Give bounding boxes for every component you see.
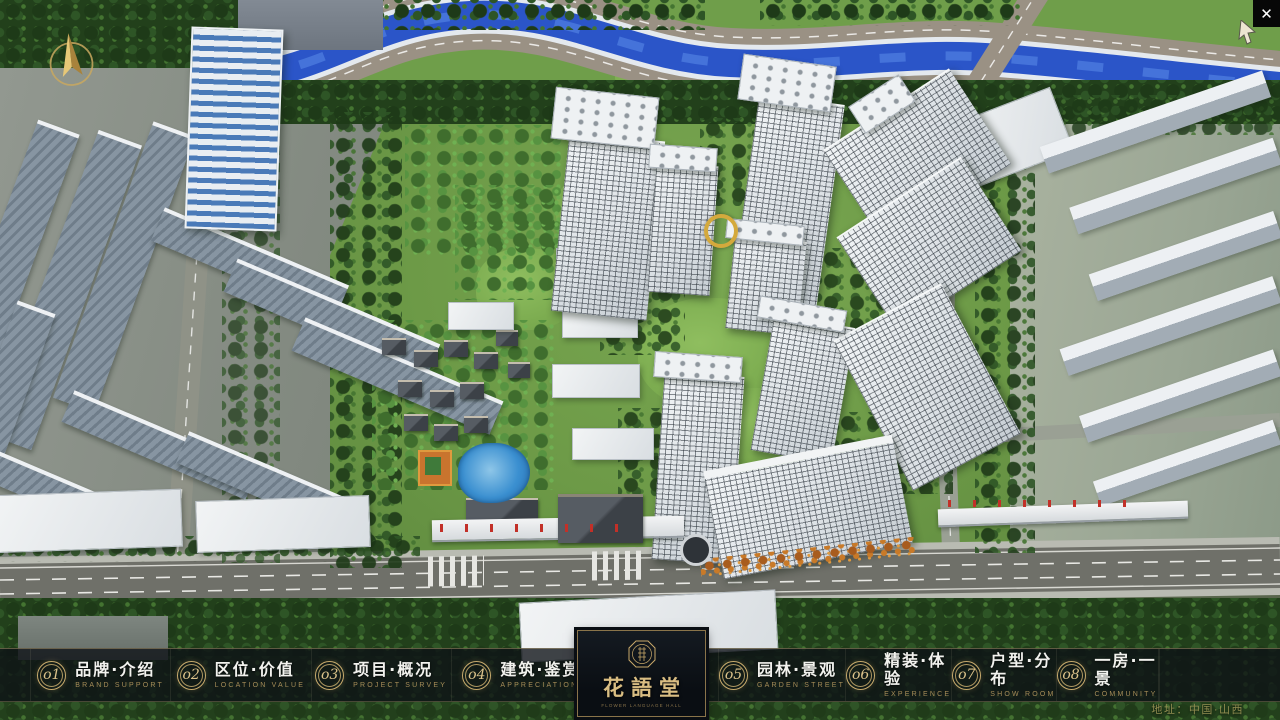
- project-address: 地址：中国·山西: [1151, 701, 1244, 717]
- villa: [398, 380, 422, 397]
- villa: [460, 382, 484, 399]
- nav-label-zh: 建筑·鉴赏: [500, 661, 580, 679]
- nav-item-location-value[interactable]: o2 区位·价值 LOCATION VALUE: [171, 649, 311, 701]
- pavilion-roof-garden: [425, 457, 441, 475]
- tree-cluster: [975, 128, 1035, 553]
- nav-item-project-survey[interactable]: o3 项目·概况 PROJECT SURVEY: [312, 649, 452, 701]
- apartment-slab: [195, 495, 371, 553]
- nav-label-en: COMMUNITY: [1095, 691, 1158, 698]
- nav-label-zh: 精装·体验: [884, 652, 951, 687]
- masterplan-3d-view[interactable]: ✕ o1 品牌·介绍 BRAND SUPPORT o2 区位·价值 LOCATI…: [0, 0, 1280, 720]
- close-icon: ✕: [1260, 5, 1273, 23]
- project-name-en: FLOWER LANGUAGE HALL: [601, 703, 682, 708]
- nav-label-en: GARDEN STREET: [757, 682, 845, 689]
- nav-label-en: LOCATION VALUE: [215, 682, 305, 689]
- midrise-block: [572, 428, 654, 460]
- villa: [430, 390, 454, 407]
- villa: [404, 414, 428, 431]
- nav-label-en: APPRECIATION: [500, 682, 578, 689]
- nav-item-brand-intro[interactable]: o1 品牌·介绍 BRAND SUPPORT: [30, 649, 171, 701]
- nav-group-right: o5 园林·景观 GARDEN STREET o6 精装·体验 EXPERIEN…: [718, 649, 1280, 701]
- nav-label-zh: 区位·价值: [215, 661, 295, 679]
- compass[interactable]: [37, 23, 106, 95]
- project-name: 花語堂: [596, 672, 687, 702]
- tower-roof: [648, 144, 718, 173]
- mouse-cursor: [1238, 20, 1258, 46]
- nav-label-zh: 项目·概况: [353, 661, 433, 679]
- nav-label-en: BRAND SUPPORT: [75, 682, 164, 689]
- nav-group-left: o1 品牌·介绍 BRAND SUPPORT o2 区位·价值 LOCATION…: [0, 649, 592, 701]
- glass-office-tower: [185, 26, 284, 231]
- nav-number-badge: o1: [37, 661, 66, 690]
- midrise-block: [448, 302, 514, 330]
- apartment-slab: [0, 489, 183, 554]
- nav-label-en: EXPERIENCE: [884, 691, 951, 698]
- nav-number-badge: o5: [719, 661, 748, 690]
- villa: [434, 424, 458, 441]
- nav-label-en: SHOW ROOM: [990, 691, 1055, 698]
- project-logo-panel[interactable]: 花語堂 FLOWER LANGUAGE HALL: [577, 630, 706, 717]
- nav-item-architecture[interactable]: o4 建筑·鉴赏 APPRECIATION: [452, 649, 592, 701]
- villa: [444, 340, 468, 357]
- tree-cluster: [760, 0, 1020, 26]
- orange-pavilion: [418, 450, 452, 486]
- flag-row: [948, 500, 1148, 507]
- crosswalk: [592, 551, 646, 581]
- crosswalk: [428, 556, 484, 587]
- nav-label-en: PROJECT SURVEY: [353, 682, 447, 689]
- nav-label-zh: 品牌·介绍: [75, 661, 155, 679]
- entrance-plaza: [680, 534, 712, 566]
- nav-label-zh: 一房·一景: [1095, 652, 1158, 687]
- nav-number-badge: o6: [846, 661, 875, 690]
- nav-item-garden-landscape[interactable]: o5 园林·景观 GARDEN STREET: [718, 649, 846, 701]
- nav-item-interior-experience[interactable]: o6 精装·体验 EXPERIENCE: [846, 649, 952, 701]
- nav-number-badge: o8: [1057, 661, 1086, 690]
- nav-number-badge: o4: [462, 661, 491, 690]
- nav-number-badge: o7: [952, 661, 981, 690]
- villa: [382, 338, 406, 355]
- nav-label-zh: 园林·景观: [757, 661, 837, 679]
- nav-filler: [1159, 649, 1280, 701]
- nav-number-badge: o3: [315, 661, 344, 690]
- nav-number-badge: o2: [177, 661, 206, 690]
- villa: [464, 416, 488, 433]
- gold-ring-sculpture: [704, 214, 738, 248]
- flag-row: [440, 524, 640, 532]
- seal-icon: [627, 639, 657, 669]
- villa: [474, 352, 498, 369]
- villa: [496, 330, 518, 346]
- nav-item-floorplan-distribution[interactable]: o7 户型·分布 SHOW ROOM: [952, 649, 1056, 701]
- entrance-gate: [558, 494, 643, 543]
- villa: [508, 362, 530, 378]
- compass-icon: [37, 23, 106, 95]
- midrise-block: [552, 364, 640, 398]
- nav-item-room-view[interactable]: o8 一房·一景 COMMUNITY: [1057, 649, 1159, 701]
- villa: [414, 350, 438, 367]
- nav-label-zh: 户型·分布: [990, 652, 1055, 687]
- tower-roof: [551, 87, 660, 150]
